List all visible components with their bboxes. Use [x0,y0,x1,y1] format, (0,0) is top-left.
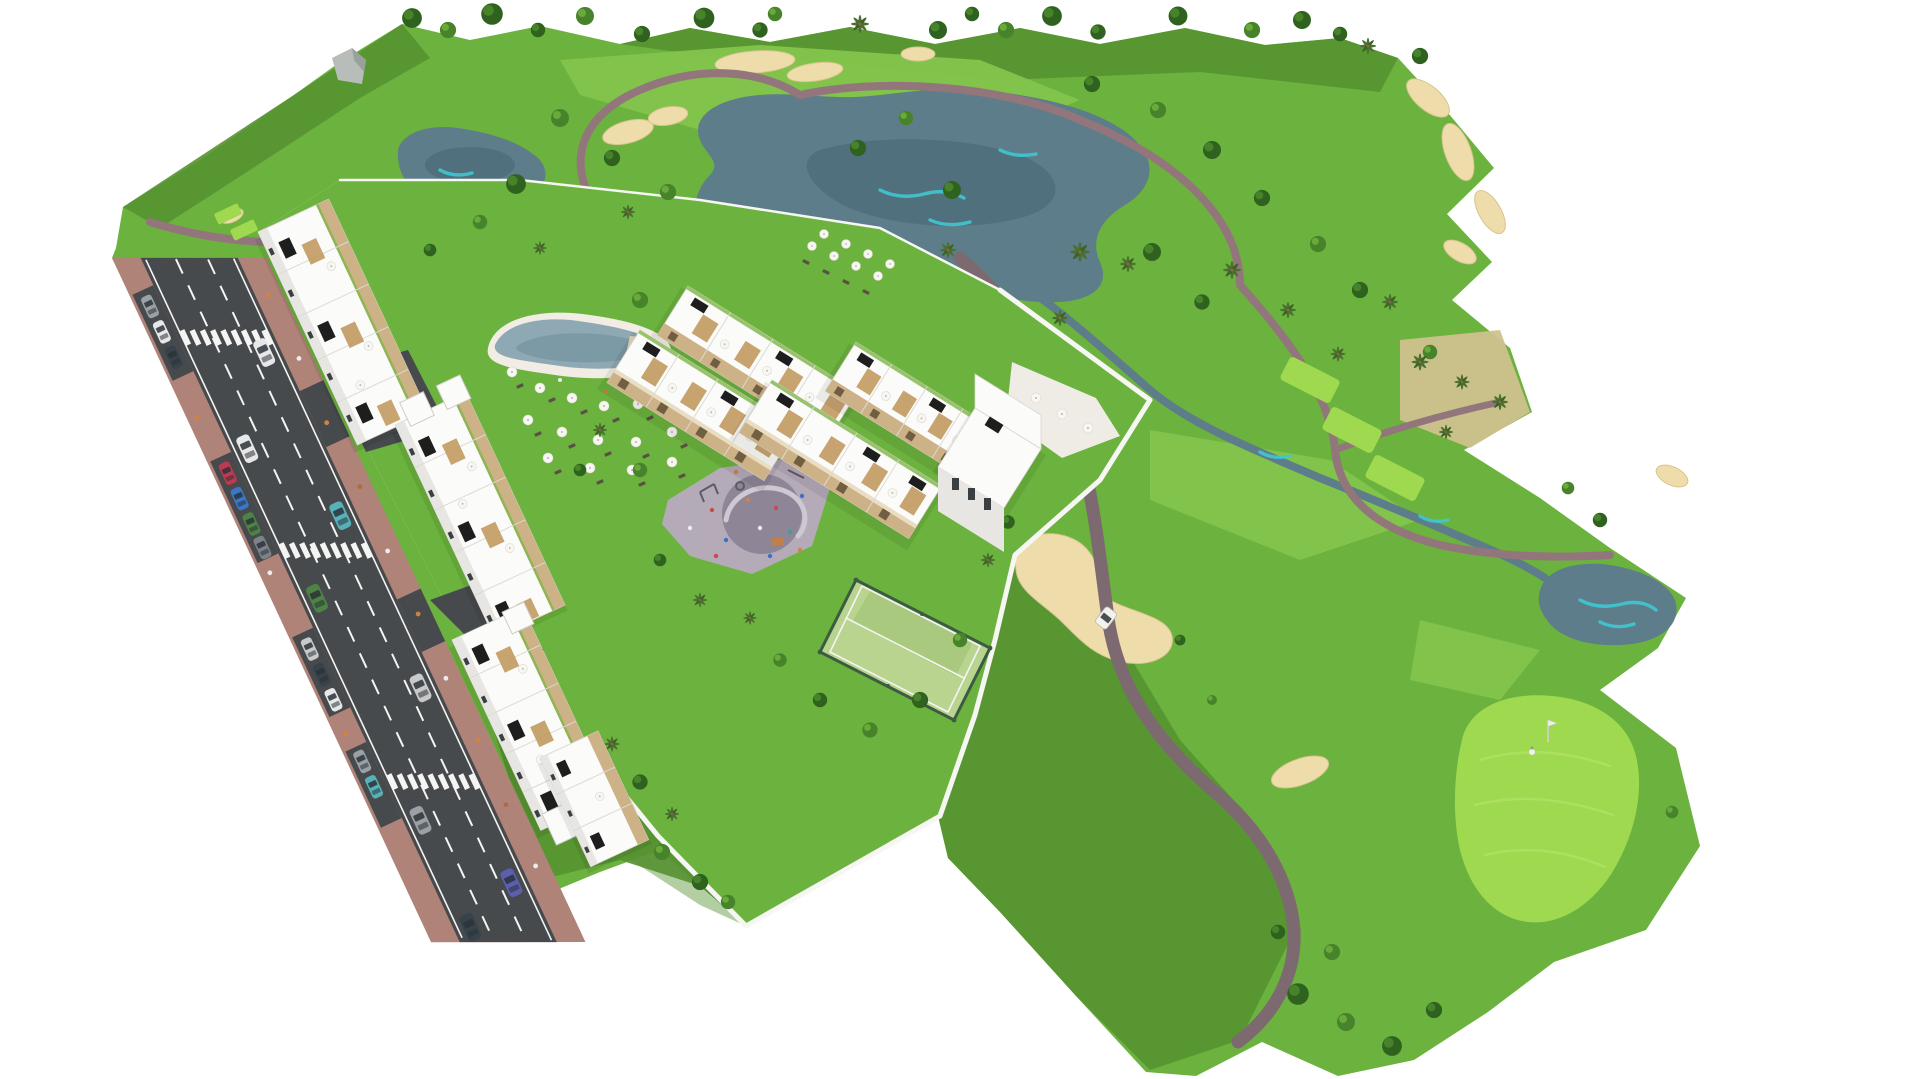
palm-icon [665,807,679,821]
tree-icon [943,181,961,199]
tree-icon [632,774,647,789]
tree-icon [531,23,545,37]
bush-icon [1207,695,1217,705]
tree-icon [1352,282,1368,298]
tree-icon [1382,1036,1402,1056]
lake-west-deep [425,147,515,183]
tree-icon [1150,102,1166,118]
tree-icon [632,292,648,308]
tree-icon [402,8,422,28]
tree-icon [1426,1002,1442,1018]
palm-icon [1070,242,1090,262]
palm-icon [593,423,607,437]
palm-icon [1330,346,1345,361]
bush-icon [1175,635,1186,646]
tree-icon [1084,76,1100,92]
palm-icon [1411,353,1428,370]
palm-icon [1382,294,1398,310]
tree-icon [473,215,487,229]
palm-icon [851,15,869,33]
tree-icon [1254,190,1270,206]
tree-icon [752,22,767,37]
tree-icon [634,26,650,42]
palm-icon [1280,302,1296,318]
tree-icon [1203,141,1221,159]
tree-icon [773,653,787,667]
tree-icon [1562,482,1575,495]
tree-icon [551,109,569,127]
tree-icon [440,22,456,38]
palm-icon [1454,374,1469,389]
tree-icon [506,174,526,194]
palm-icon [533,241,547,255]
tree-icon [1310,236,1326,252]
tree-icon [1287,983,1309,1005]
site-plan-render [0,0,1920,1079]
tree-icon [813,693,827,707]
bunker [901,47,935,61]
tree-icon [965,7,979,21]
tree-icon [721,895,735,909]
palm-icon [981,553,995,567]
tree-icon [1244,22,1260,38]
tree-icon [1169,7,1188,26]
tree-icon [768,7,782,21]
tree-icon [929,21,947,39]
tree-icon [953,633,967,647]
bunker [1653,461,1691,492]
tree-icon [850,140,866,156]
tree-icon [1333,27,1347,41]
tree-icon [998,22,1014,38]
tree-icon [1194,294,1209,309]
tree-icon [604,150,620,166]
tree-icon [633,463,647,477]
palm-icon [1360,38,1376,54]
palm-icon [743,611,757,625]
tree-icon [912,692,928,708]
tree-icon [1593,513,1607,527]
tree-icon [694,8,715,29]
tree-icon [660,184,676,200]
tree-icon [1090,24,1105,39]
tree-icon [899,111,913,125]
render-canvas [0,0,1920,1079]
palm-icon [1492,394,1508,410]
palm-icon [1052,310,1068,326]
tree-icon [654,554,667,567]
tree-icon [1293,11,1311,29]
tree-icon [1324,944,1340,960]
tree-icon [424,244,437,257]
tree-icon [481,3,503,25]
palm-icon [1120,256,1136,272]
palm-icon [1223,261,1241,279]
tree-icon [1337,1013,1355,1031]
tree-icon [1271,925,1285,939]
tree-icon [862,722,877,737]
tree-icon [654,844,670,860]
tree-icon [1143,243,1161,261]
tree-icon [1042,6,1062,26]
palm-icon [940,242,956,258]
palm-icon [693,593,707,607]
palm-icon [621,205,635,219]
tree-icon [574,464,587,477]
tree-icon [1412,48,1428,64]
tree-icon [1666,806,1679,819]
tree-icon [576,7,594,25]
palm-icon [1439,425,1453,439]
bunker [1468,186,1511,239]
tree-icon [692,874,708,890]
